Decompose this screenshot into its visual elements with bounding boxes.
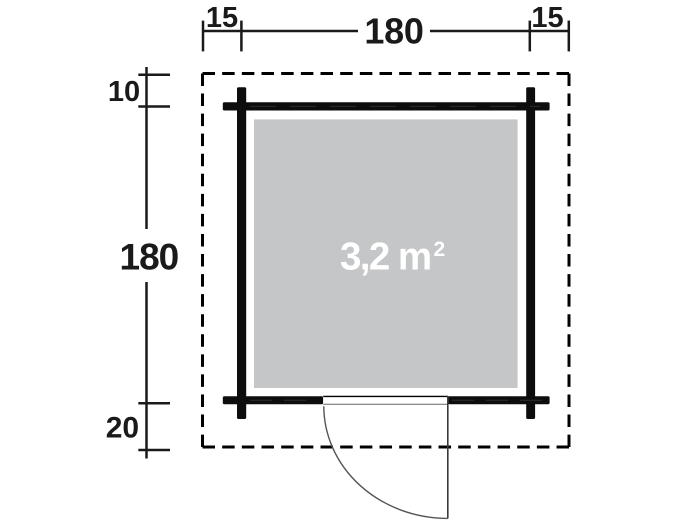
svg-text:15: 15 xyxy=(206,2,238,34)
svg-text:15: 15 xyxy=(531,2,563,34)
svg-text:3,2 m: 3,2 m xyxy=(340,236,430,279)
svg-text:10: 10 xyxy=(108,76,140,108)
svg-text:180: 180 xyxy=(120,236,179,277)
svg-text:180: 180 xyxy=(364,11,423,52)
svg-text:20: 20 xyxy=(106,412,139,445)
svg-text:2: 2 xyxy=(434,238,446,261)
